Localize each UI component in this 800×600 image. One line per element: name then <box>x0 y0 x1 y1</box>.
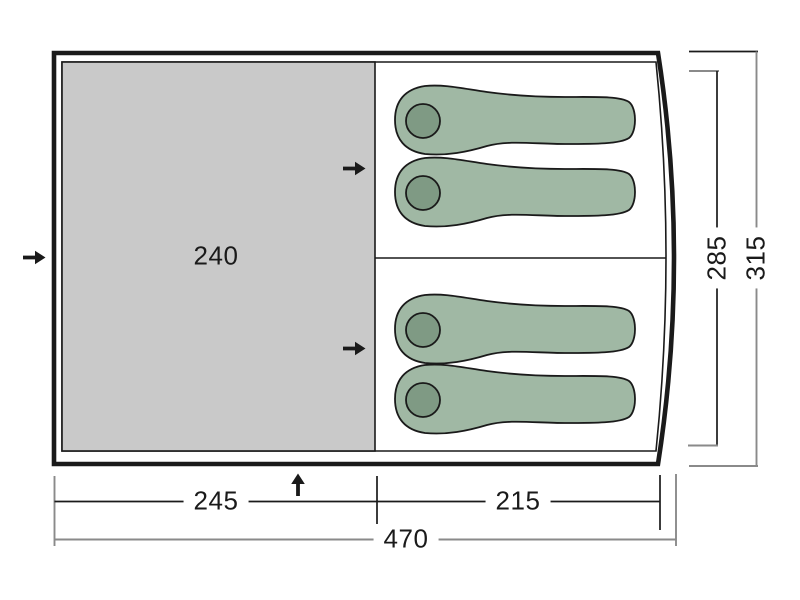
total-depth-label: 315 <box>742 228 769 289</box>
porch-width-label: 240 <box>194 242 239 269</box>
cabin-length-label: 215 <box>486 487 551 514</box>
tent-floorplan-diagram: 240 245 215 470 285 315 <box>0 0 800 600</box>
tent-floorplan-svg <box>0 0 800 600</box>
main-entrance-arrow-icon <box>291 474 305 497</box>
inner-depth-label: 285 <box>703 228 730 289</box>
total-length-label: 470 <box>374 525 439 552</box>
porch-length-label: 245 <box>184 487 249 514</box>
front-entrance-arrow-icon <box>23 251 46 265</box>
bottom-dimension-lines <box>55 474 677 546</box>
